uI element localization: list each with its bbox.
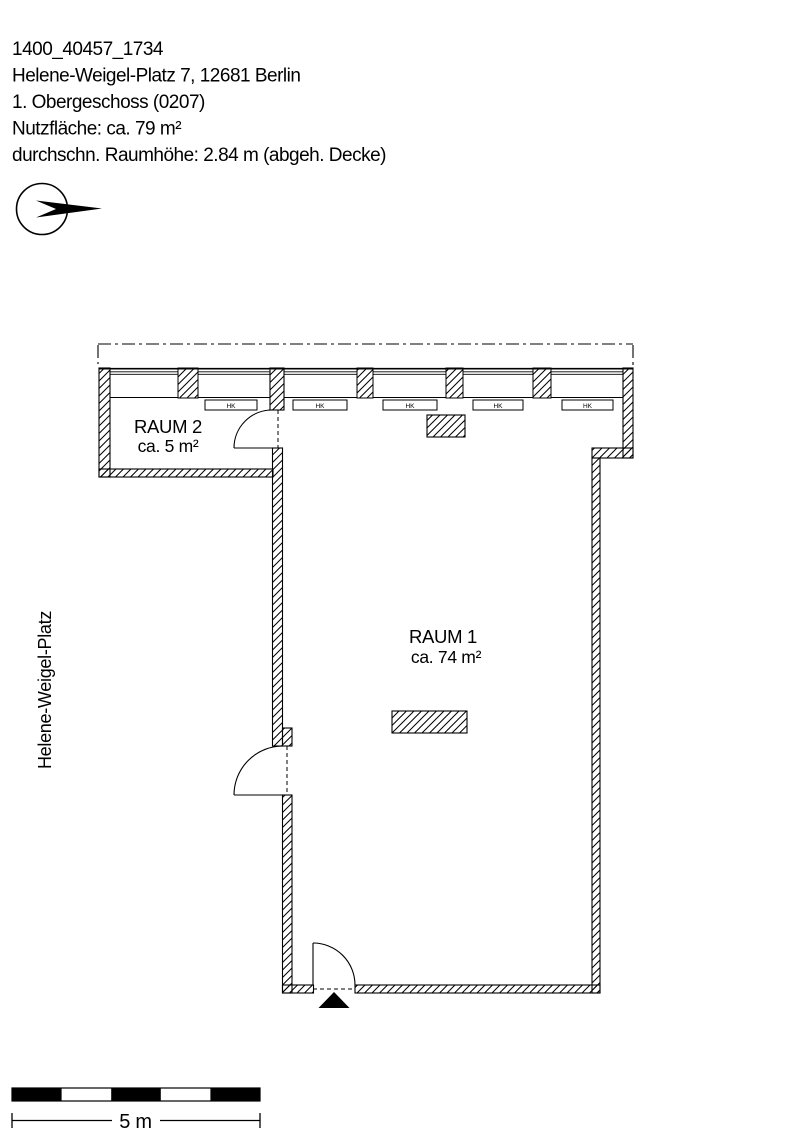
usable-area-line: Nutzfläche: ca. 79 m² [12,119,181,140]
raum2-south-wall [99,469,273,477]
street-label: Helene-Weigel-Platz [35,611,55,769]
radiator-label: HK [493,403,503,410]
raum1-west-wall-lower [283,795,293,993]
radiator-label: HK [405,403,415,410]
floor-line: 1. Obergeschoss (0207) [12,92,205,113]
door2-jamb-notch [283,728,293,746]
scale-label: 5 m [119,1111,151,1133]
site-boundary-line [98,344,633,368]
columns [392,415,467,733]
raum2-name: RAUM 2 [134,416,202,437]
walls [99,368,633,993]
north-arrow-icon [17,184,103,235]
door1-head-wall-stub [270,368,284,410]
column-upper [427,415,465,437]
floor-plan-drawing: 1400_40457_1734 Helene-Weigel-Platz 7, 1… [0,0,805,1140]
project-id: 1400_40457_1734 [12,39,164,60]
raum1-west-wall-upper [273,448,283,746]
doors [234,410,355,1008]
south-wall-right [355,985,600,993]
raum2-west-wall [99,368,110,477]
entrance-marker-icon [319,992,350,1008]
radiator-label: HK [226,403,236,410]
column-lower [392,711,467,733]
east-wall-lower [592,458,600,993]
east-wall-upper [623,368,633,458]
door-raum2 [234,410,278,448]
radiator-label: HK [583,403,593,410]
scale-bar: 5 m [12,1088,260,1133]
top-facade-wall [99,368,633,398]
door-west [234,746,287,795]
room-height-line: durchschn. Raumhöhe: 2.84 m (abgeh. Deck… [12,145,386,166]
header-block: 1400_40457_1734 Helene-Weigel-Platz 7, 1… [12,39,386,166]
door-entrance [313,943,355,1008]
radiator-label: HK [315,403,325,410]
raum1-name: RAUM 1 [409,626,477,647]
wall-pilasters [178,368,551,398]
address-line: Helene-Weigel-Platz 7, 12681 Berlin [12,66,300,87]
raum2-area: ca. 5 m² [138,436,199,456]
room-labels: RAUM 2 ca. 5 m² RAUM 1 ca. 74 m² [134,416,482,667]
radiators: HK HK HK HK HK [205,400,613,410]
raum1-area: ca. 74 m² [411,647,482,667]
east-wall-step [592,448,633,458]
south-wall-left [283,985,314,993]
floor-plan-page: 1400_40457_1734 Helene-Weigel-Platz 7, 1… [0,0,805,1140]
